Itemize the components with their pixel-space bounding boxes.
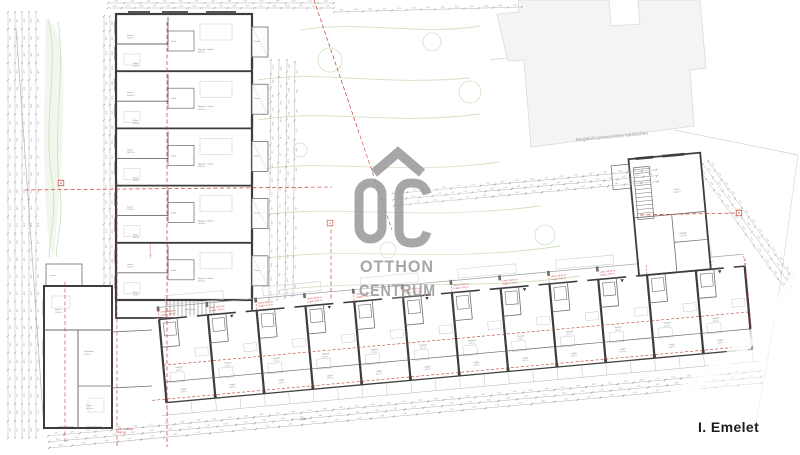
annotation-text: Előtér <box>133 119 139 122</box>
dimension-number: 4,50 <box>324 1 328 3</box>
dimension-number: 2,10 <box>219 430 223 432</box>
dimension-number: 2,45 <box>295 109 297 113</box>
dimension-number: 3,62 <box>23 19 25 23</box>
annotation-text: 4,12 m² <box>376 372 383 376</box>
dimension-number: 1,35 <box>9 36 11 40</box>
dimension-number: 1,65 <box>187 426 191 428</box>
dimension-number: 0,75 <box>37 138 39 142</box>
dimension-number: 2,38 <box>482 195 486 197</box>
dimension-number: 0,45 <box>105 170 107 174</box>
wing-red-label: Lakás: 52,4 m² <box>149 243 152 258</box>
annotation-text: 4,05 m² <box>473 363 480 367</box>
dimension-number: 1,65 <box>219 6 223 8</box>
dimension-number: 2,45 <box>647 180 651 182</box>
plan-geometry <box>343 302 354 303</box>
dimension-number: 1,65 <box>545 177 549 179</box>
dimension-number: 1,00 <box>515 192 519 194</box>
dimension-number: 1,20 <box>166 6 170 8</box>
dimension-number: 2,10 <box>599 389 603 391</box>
annotation-text: 15,80 m² <box>127 94 135 97</box>
dimension-number: 0,30 <box>569 181 573 183</box>
dimension-number: 2,10 <box>271 65 273 69</box>
dimension-number: 0,90 <box>114 1 118 3</box>
dimension-number: 4,50 <box>271 79 273 83</box>
dimension-number: 1,00 <box>243 421 247 423</box>
annotation-text: 4,05 m² <box>571 354 578 358</box>
dimension-number: 0,30 <box>281 418 285 420</box>
dimension-number: 2,45 <box>23 53 25 57</box>
dimension-number: 3,62 <box>56 438 60 440</box>
dimension-number: 4,50 <box>647 168 651 170</box>
dimension-number: 0,30 <box>23 223 25 227</box>
annotation-text: 14,20 m² <box>86 407 94 410</box>
dimension-number: 0,75 <box>9 206 11 210</box>
dimension-number: 2,10 <box>105 51 107 55</box>
dimension-number: 1,65 <box>270 206 272 210</box>
dimension-number: 2,38 <box>559 176 563 178</box>
dimension-number: 2,10 <box>23 240 25 244</box>
dimension-number: 0,90 <box>271 122 273 126</box>
plan-geometry <box>251 288 253 297</box>
dimension-number: 0,75 <box>402 401 406 403</box>
dimension-number: 1,00 <box>151 436 155 438</box>
dimension-number: 1,65 <box>37 104 39 108</box>
dimension-number: 0,90 <box>9 70 11 74</box>
annotation-text: Közlekedő <box>84 351 95 353</box>
watermark-word-1: OTTHON <box>360 257 434 276</box>
dimension-number: 4,50 <box>581 186 585 188</box>
dimension-number: 2,38 <box>105 440 109 442</box>
dimension-number: 3,10 <box>23 121 25 125</box>
annotation-text: 4,12 m² <box>278 381 285 385</box>
plan-geometry <box>251 59 253 68</box>
dimension-number: 0,30 <box>30 342 32 346</box>
dimension-number: 0,30 <box>513 5 517 7</box>
dimension-number: 2,10 <box>299 6 303 8</box>
dimension-number: 1,00 <box>37 428 39 432</box>
dimension-number: 3,62 <box>271 108 273 112</box>
dimension-number: 1,20 <box>23 342 25 346</box>
annotation-text: Terasz <box>254 97 260 100</box>
dimension-number: 1,00 <box>37 155 39 159</box>
annotation-text: Nappali + étkező <box>198 162 214 165</box>
dimension-number: 5,05 <box>37 325 39 329</box>
annotation-text: 25,62 m² <box>198 279 206 282</box>
dimension-number: 3,85 <box>16 359 18 363</box>
dimension-number: 0,75 <box>278 255 280 259</box>
annotation-text: Terasz <box>254 269 260 272</box>
annotation-text: Terasz <box>254 154 260 157</box>
dimension-number: 5,05 <box>431 404 435 406</box>
dimension-number: 1,35 <box>16 155 18 159</box>
dimension-number: 0,90 <box>37 274 39 278</box>
dimension-number: 2,45 <box>104 125 106 129</box>
dimension-number: 0,90 <box>16 189 18 193</box>
dimension-number: 1,00 <box>484 5 488 7</box>
dimension-number: 0,75 <box>225 423 229 425</box>
dimension-number: 1,20 <box>9 377 11 381</box>
dimension-number: 2,38 <box>232 6 236 8</box>
dimension-number: 3,85 <box>541 400 545 402</box>
annotation-text: Előtér <box>133 234 139 237</box>
dimension-number: 3,85 <box>30 53 32 57</box>
dimension-number: 3,62 <box>279 101 281 105</box>
dimension-number: 1,65 <box>23 138 25 142</box>
dimension-number: 0,30 <box>16 377 18 381</box>
dimension-number: 1,20 <box>412 406 416 408</box>
dimension-number: 0,75 <box>495 404 499 406</box>
dimension-number: 2,10 <box>632 169 636 171</box>
dimension-number: 4,50 <box>30 377 32 381</box>
dimension-number: 2,45 <box>37 19 39 23</box>
dimension-number: 1,00 <box>9 223 11 227</box>
dimension-number: 0,90 <box>23 308 25 312</box>
dimension-number: 0,90 <box>529 389 533 391</box>
watermark-word-2: CENTRUM <box>359 281 436 300</box>
dimension-number: 1,00 <box>418 399 422 401</box>
dimension-number: 1,20 <box>37 36 39 40</box>
plan-geometry <box>115 47 117 60</box>
dimension-number: 2,38 <box>23 155 25 159</box>
dimension-number: 5,05 <box>16 240 18 244</box>
dimension-number: 0,45 <box>110 125 112 129</box>
dimension-number: 0,90 <box>75 437 79 439</box>
dimension-number: 5,05 <box>30 206 32 210</box>
dimension-number: 0,75 <box>16 325 18 329</box>
dimension-number: 2,38 <box>270 221 272 225</box>
plan-geometry <box>246 311 257 312</box>
dimension-number: 3,10 <box>37 359 39 363</box>
dimension-number: 3,85 <box>286 243 288 247</box>
plan-geometry <box>86 427 102 429</box>
dimension-number: 3,62 <box>356 411 360 413</box>
dimension-number: 3,62 <box>30 411 32 415</box>
dimension-number: 3,62 <box>23 291 25 295</box>
dimension-number: 3,62 <box>105 96 107 100</box>
dimension-number: 0,30 <box>111 229 113 233</box>
dimension-number: 0,90 <box>30 155 32 159</box>
plan-geometry <box>43 340 45 356</box>
dimension-number: 1,65 <box>105 200 107 204</box>
dimension-number: 2,45 <box>271 136 273 140</box>
dimension-number: 0,90 <box>311 421 315 423</box>
dimension-number: 1,65 <box>487 399 491 401</box>
dimension-number: 1,35 <box>279 84 281 88</box>
dimension-number: 2,10 <box>16 121 18 125</box>
dimension-number: 3,62 <box>287 112 289 116</box>
dimension-number: 2,38 <box>206 425 210 427</box>
dimension-number: 3,10 <box>278 204 280 208</box>
plan-geometry <box>303 293 306 298</box>
annotation-text: Fürdő <box>171 270 177 272</box>
dimension-number: 3,85 <box>556 182 560 184</box>
dimension-number: 2,45 <box>368 8 372 10</box>
dimension-number: 0,30 <box>196 432 200 434</box>
dimension-number: 0,90 <box>9 342 11 346</box>
annotation-text: Szoba <box>55 309 62 311</box>
dimension-number: 5,05 <box>323 408 327 410</box>
dimension-number: 0,75 <box>16 53 18 57</box>
dimension-number: 3,62 <box>9 325 11 329</box>
dimension-number: 0,75 <box>655 378 659 380</box>
dimension-number: 0,75 <box>149 424 153 426</box>
dimension-number: 1,35 <box>287 100 289 104</box>
dimension-number: 0,45 <box>287 171 289 175</box>
dimension-number: 0,90 <box>105 111 107 115</box>
dimension-number: 1,35 <box>105 81 107 85</box>
dimension-number: 3,62 <box>16 172 18 176</box>
dimension-number: 2,45 <box>393 408 397 410</box>
annotation-text: 4,05 m² <box>181 390 188 394</box>
dimension-number: 3,62 <box>295 70 297 74</box>
dimension-number: 0,75 <box>30 19 32 23</box>
dimension-number: 5,05 <box>70 431 74 433</box>
dimension-number: 3,10 <box>168 428 172 430</box>
plan-geometry <box>197 315 208 316</box>
dimension-number: 2,45 <box>16 206 18 210</box>
dimension-number: 3,10 <box>59 444 63 446</box>
dimension-number: 3,85 <box>111 215 113 219</box>
dimension-number: 4,50 <box>610 394 614 396</box>
dimension-number: 0,90 <box>295 89 297 93</box>
annotation-text: Nappali + étkező <box>198 220 214 223</box>
dimension-number: 3,10 <box>23 394 25 398</box>
annotation-text: 4,05 m² <box>327 376 334 380</box>
dimension-number: 2,10 <box>465 395 469 397</box>
dimension-number: 0,75 <box>128 438 132 440</box>
annotation-text: Szoba <box>86 405 93 407</box>
dimension-number: 1,35 <box>16 428 18 432</box>
dimension-number: 0,90 <box>375 409 379 411</box>
dimension-number: 1,35 <box>497 392 501 394</box>
dimension-number: 3,62 <box>37 257 39 261</box>
dimension-number: 3,62 <box>126 6 130 8</box>
dimension-number: 3,85 <box>37 172 39 176</box>
annotation-text: 4,36 m² <box>717 341 724 345</box>
dimension-number: 4,50 <box>105 66 107 70</box>
dimension-number: 0,45 <box>37 342 39 346</box>
dimension-number: 0,75 <box>37 411 39 415</box>
dimension-number: 1,65 <box>30 257 32 261</box>
dimension-number: 4,50 <box>228 417 232 419</box>
dimension-number: 1,00 <box>111 200 113 204</box>
plan-geometry <box>206 11 236 14</box>
section-marker-letter: B <box>60 181 62 185</box>
dimension-number: 1,65 <box>16 19 18 23</box>
plan-geometry <box>115 219 117 232</box>
dimension-number: 0,75 <box>530 184 534 186</box>
dimension-number: 3,85 <box>16 87 18 91</box>
annotation-text: Előtér <box>133 291 139 294</box>
dimension-number: 0,90 <box>354 9 358 11</box>
dimension-number: 5,05 <box>111 111 113 115</box>
dimension-number: 3,62 <box>614 183 618 185</box>
plan-geometry <box>538 284 549 285</box>
dimension-number: 2,45 <box>279 135 281 139</box>
dimension-number: 0,75 <box>246 6 250 8</box>
dimension-number: 1,65 <box>278 221 280 225</box>
dimension-number: 0,45 <box>193 6 197 8</box>
dimension-number: 3,62 <box>260 414 264 416</box>
dimension-number: 2,38 <box>386 402 390 404</box>
dimension-number: 4,50 <box>618 387 622 389</box>
dimension-number: 0,30 <box>105 274 107 278</box>
dimension-number: 4,50 <box>111 259 113 263</box>
dimension-number: 1,20 <box>105 140 107 144</box>
dimension-number: 1,20 <box>30 189 32 193</box>
dimension-number: 0,45 <box>9 138 11 142</box>
dimension-number: 1,35 <box>271 93 273 97</box>
annotation-text: Fürdő <box>171 41 177 43</box>
dimension-number: 0,75 <box>574 174 578 176</box>
plan-geometry <box>115 21 117 34</box>
dimension-number: 0,90 <box>139 6 143 8</box>
annotation-text: Előtér <box>133 62 139 65</box>
dimension-number: 0,75 <box>524 396 528 398</box>
dimension-number: 5,05 <box>380 415 384 417</box>
dimension-number: 4,50 <box>16 411 18 415</box>
dimension-number: 1,35 <box>265 425 269 427</box>
dimension-number: 2,38 <box>9 189 11 193</box>
dimension-number: 3,62 <box>622 176 626 178</box>
dimension-number: 2,10 <box>582 180 586 182</box>
red-note-line2: REI 90 <box>118 430 126 434</box>
dimension-number: 4,50 <box>37 223 39 227</box>
dimension-number: 2,45 <box>93 435 97 437</box>
dimension-number: 0,30 <box>618 170 622 172</box>
dimension-number: 1,00 <box>270 249 272 253</box>
dimension-number: 3,10 <box>101 428 105 430</box>
dimension-number: 4,50 <box>9 19 11 23</box>
dimension-number: 0,90 <box>279 118 281 122</box>
dimension-number: 5,05 <box>9 121 11 125</box>
dimension-number: 3,10 <box>490 188 494 190</box>
plan-geometry <box>115 135 117 148</box>
dimension-number: 2,38 <box>639 379 643 381</box>
dimension-number: 3,62 <box>9 53 11 57</box>
dimension-number: 3,62 <box>111 51 113 55</box>
dimension-number: 5,05 <box>271 164 273 168</box>
dimension-number: 4,50 <box>30 104 32 108</box>
dimension-number: 2,45 <box>287 136 289 140</box>
dimension-number: 2,10 <box>587 396 591 398</box>
dimension-number: 2,10 <box>565 187 569 189</box>
dimension-number: 1,35 <box>37 240 39 244</box>
annotation-text: 4,02 m² <box>133 236 140 239</box>
annotation-text: 13,42 m² <box>55 311 63 314</box>
dimension-number: 3,85 <box>23 206 25 210</box>
dimension-number: 2,38 <box>516 186 520 188</box>
dimension-number: 3,10 <box>608 382 612 384</box>
dimension-number: 2,38 <box>30 274 32 278</box>
dimension-number: 4,50 <box>287 88 289 92</box>
dimension-number: 0,45 <box>403 413 407 415</box>
dimension-number: 0,30 <box>548 189 552 191</box>
red-note-line1: Fal: F1 tűzfal <box>118 427 133 431</box>
dimension-number: 1,65 <box>16 291 18 295</box>
dimension-number: 2,38 <box>37 121 39 125</box>
annotation-text: 25,62 m² <box>198 51 206 54</box>
dimension-number: 4,50 <box>23 257 25 261</box>
dimension-number: 4,50 <box>596 178 600 180</box>
dimension-number: 0,75 <box>30 291 32 295</box>
dimension-number: 3,10 <box>9 428 11 432</box>
dimension-number: 1,65 <box>82 442 86 444</box>
dimension-number: 2,10 <box>30 359 32 363</box>
dimension-number: 3,85 <box>105 22 107 26</box>
dimension-number: 0,90 <box>631 181 635 183</box>
dimension-number: 1,35 <box>609 177 613 179</box>
dimension-number: 4,50 <box>9 291 11 295</box>
plan-geometry <box>734 266 745 267</box>
dimension-number: 1,20 <box>383 8 387 10</box>
dimension-number: 2,45 <box>153 6 157 8</box>
dimension-number: 2,38 <box>227 1 231 3</box>
dimension-number: 1,20 <box>112 433 116 435</box>
dimension-number: 2,38 <box>133 425 137 427</box>
dimension-number: 1,00 <box>16 70 18 74</box>
floor-title: I. Emelet <box>698 419 759 435</box>
watermark: OTTHON CENTRUM <box>308 124 484 300</box>
dimension-number: 1,00 <box>30 308 32 312</box>
dimension-number: 3,85 <box>174 434 178 436</box>
dimension-number: 3,10 <box>16 274 18 278</box>
dimension-number: 0,75 <box>23 172 25 176</box>
dimension-number: 0,90 <box>111 66 113 70</box>
left-wing-outline <box>116 14 252 300</box>
plan-geometry <box>295 306 306 307</box>
dimension-number: 0,75 <box>243 1 247 3</box>
annotation-text: 3,94 m² <box>133 293 140 296</box>
dimension-number: 2,38 <box>111 170 113 174</box>
dimension-number: 2,10 <box>9 274 11 278</box>
annotation-text: 25,48 m² <box>198 108 206 111</box>
plan-geometry <box>115 161 117 174</box>
dimension-number: 3,62 <box>656 384 660 386</box>
annotation-text: 4,02 m² <box>133 122 140 125</box>
dimension-number: 3,85 <box>105 259 107 263</box>
dimension-number: 0,90 <box>287 124 289 128</box>
dimension-number: 1,00 <box>16 342 18 346</box>
dimension-number: 2,45 <box>334 419 338 421</box>
annotation-text: 3,94 m² <box>133 65 140 68</box>
annotation-text: Fürdő <box>171 213 177 215</box>
dimension-number: 2,45 <box>648 174 652 176</box>
dimension-number: 0,90 <box>276 412 280 414</box>
annotation-text: Fürdő <box>171 98 177 100</box>
dimension-number: 3,10 <box>426 7 430 9</box>
dimension-number: 1,65 <box>503 187 507 189</box>
annotation-text: Terasz <box>254 212 260 215</box>
dimension-number: 1,00 <box>518 402 522 404</box>
plan-geometry <box>115 250 117 263</box>
dimension-number: 4,50 <box>312 6 316 8</box>
dimension-number: 2,38 <box>105 215 107 219</box>
dimension-number: 4,50 <box>279 67 281 71</box>
dimension-number: 0,75 <box>111 185 113 189</box>
dimension-number: 1,00 <box>278 272 280 276</box>
dimension-number: 3,10 <box>206 6 210 8</box>
dimension-number: 2,10 <box>111 244 113 248</box>
dimension-number: 5,05 <box>9 394 11 398</box>
dimension-number: 3,85 <box>294 284 296 288</box>
dimension-number: 1,35 <box>113 6 117 8</box>
annotation-text: 25,48 m² <box>198 222 206 225</box>
dimension-number: 3,85 <box>30 325 32 329</box>
dimension-number: 2,45 <box>30 172 32 176</box>
dimension-number: 0,75 <box>469 6 473 8</box>
dimension-number: 3,85 <box>603 172 607 174</box>
